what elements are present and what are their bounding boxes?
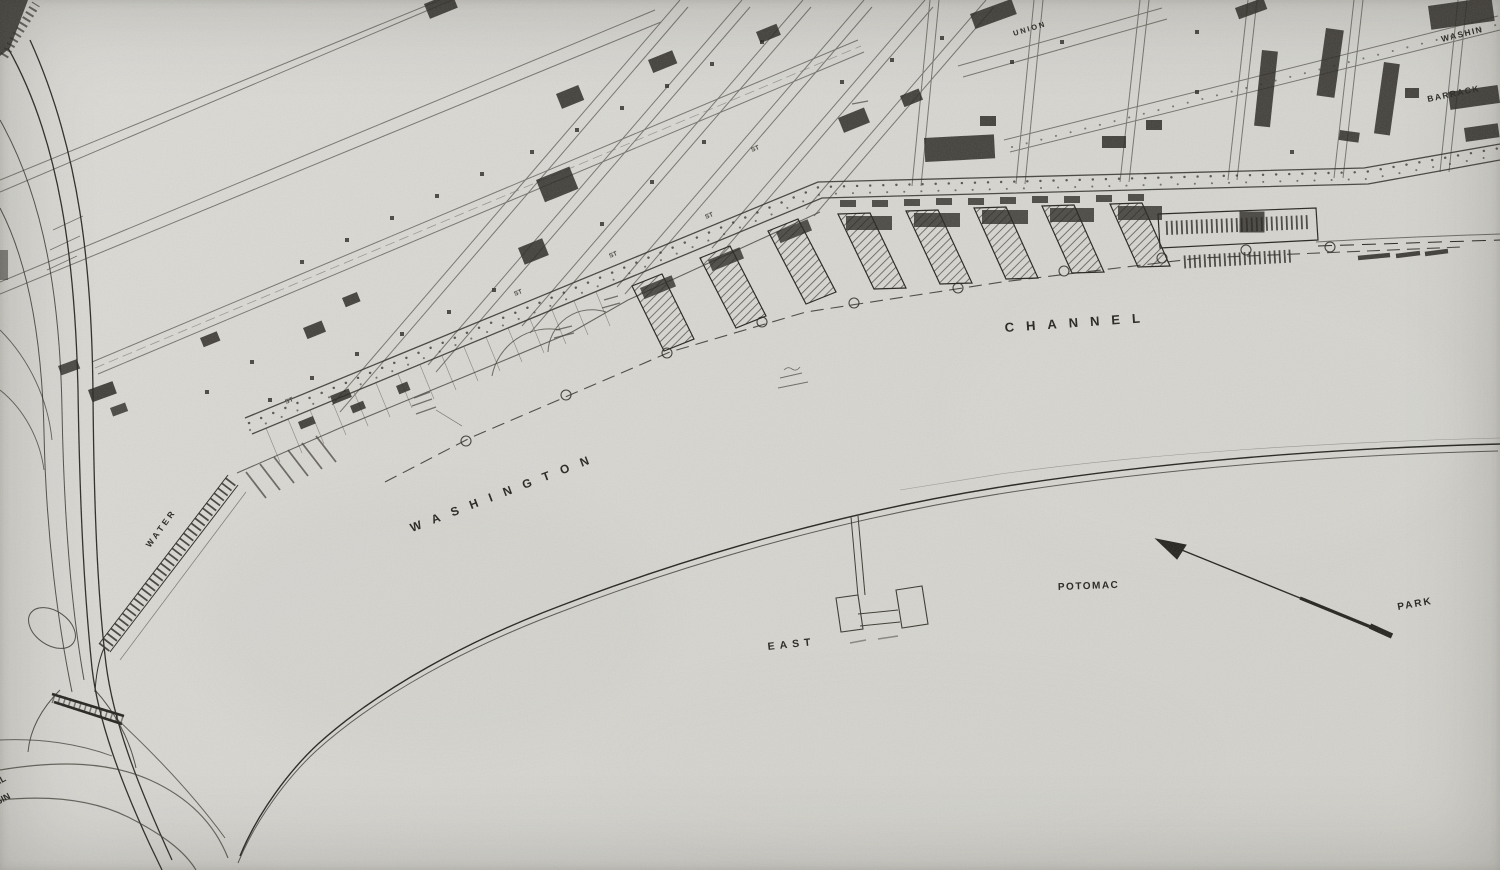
film-grain-overlay [0,0,1500,870]
scanned-map-image: WASHINGTON CHANNEL EAST POTOMAC PARK WAT… [0,0,1500,870]
map-canvas: WASHINGTON CHANNEL EAST POTOMAC PARK WAT… [0,0,1500,870]
